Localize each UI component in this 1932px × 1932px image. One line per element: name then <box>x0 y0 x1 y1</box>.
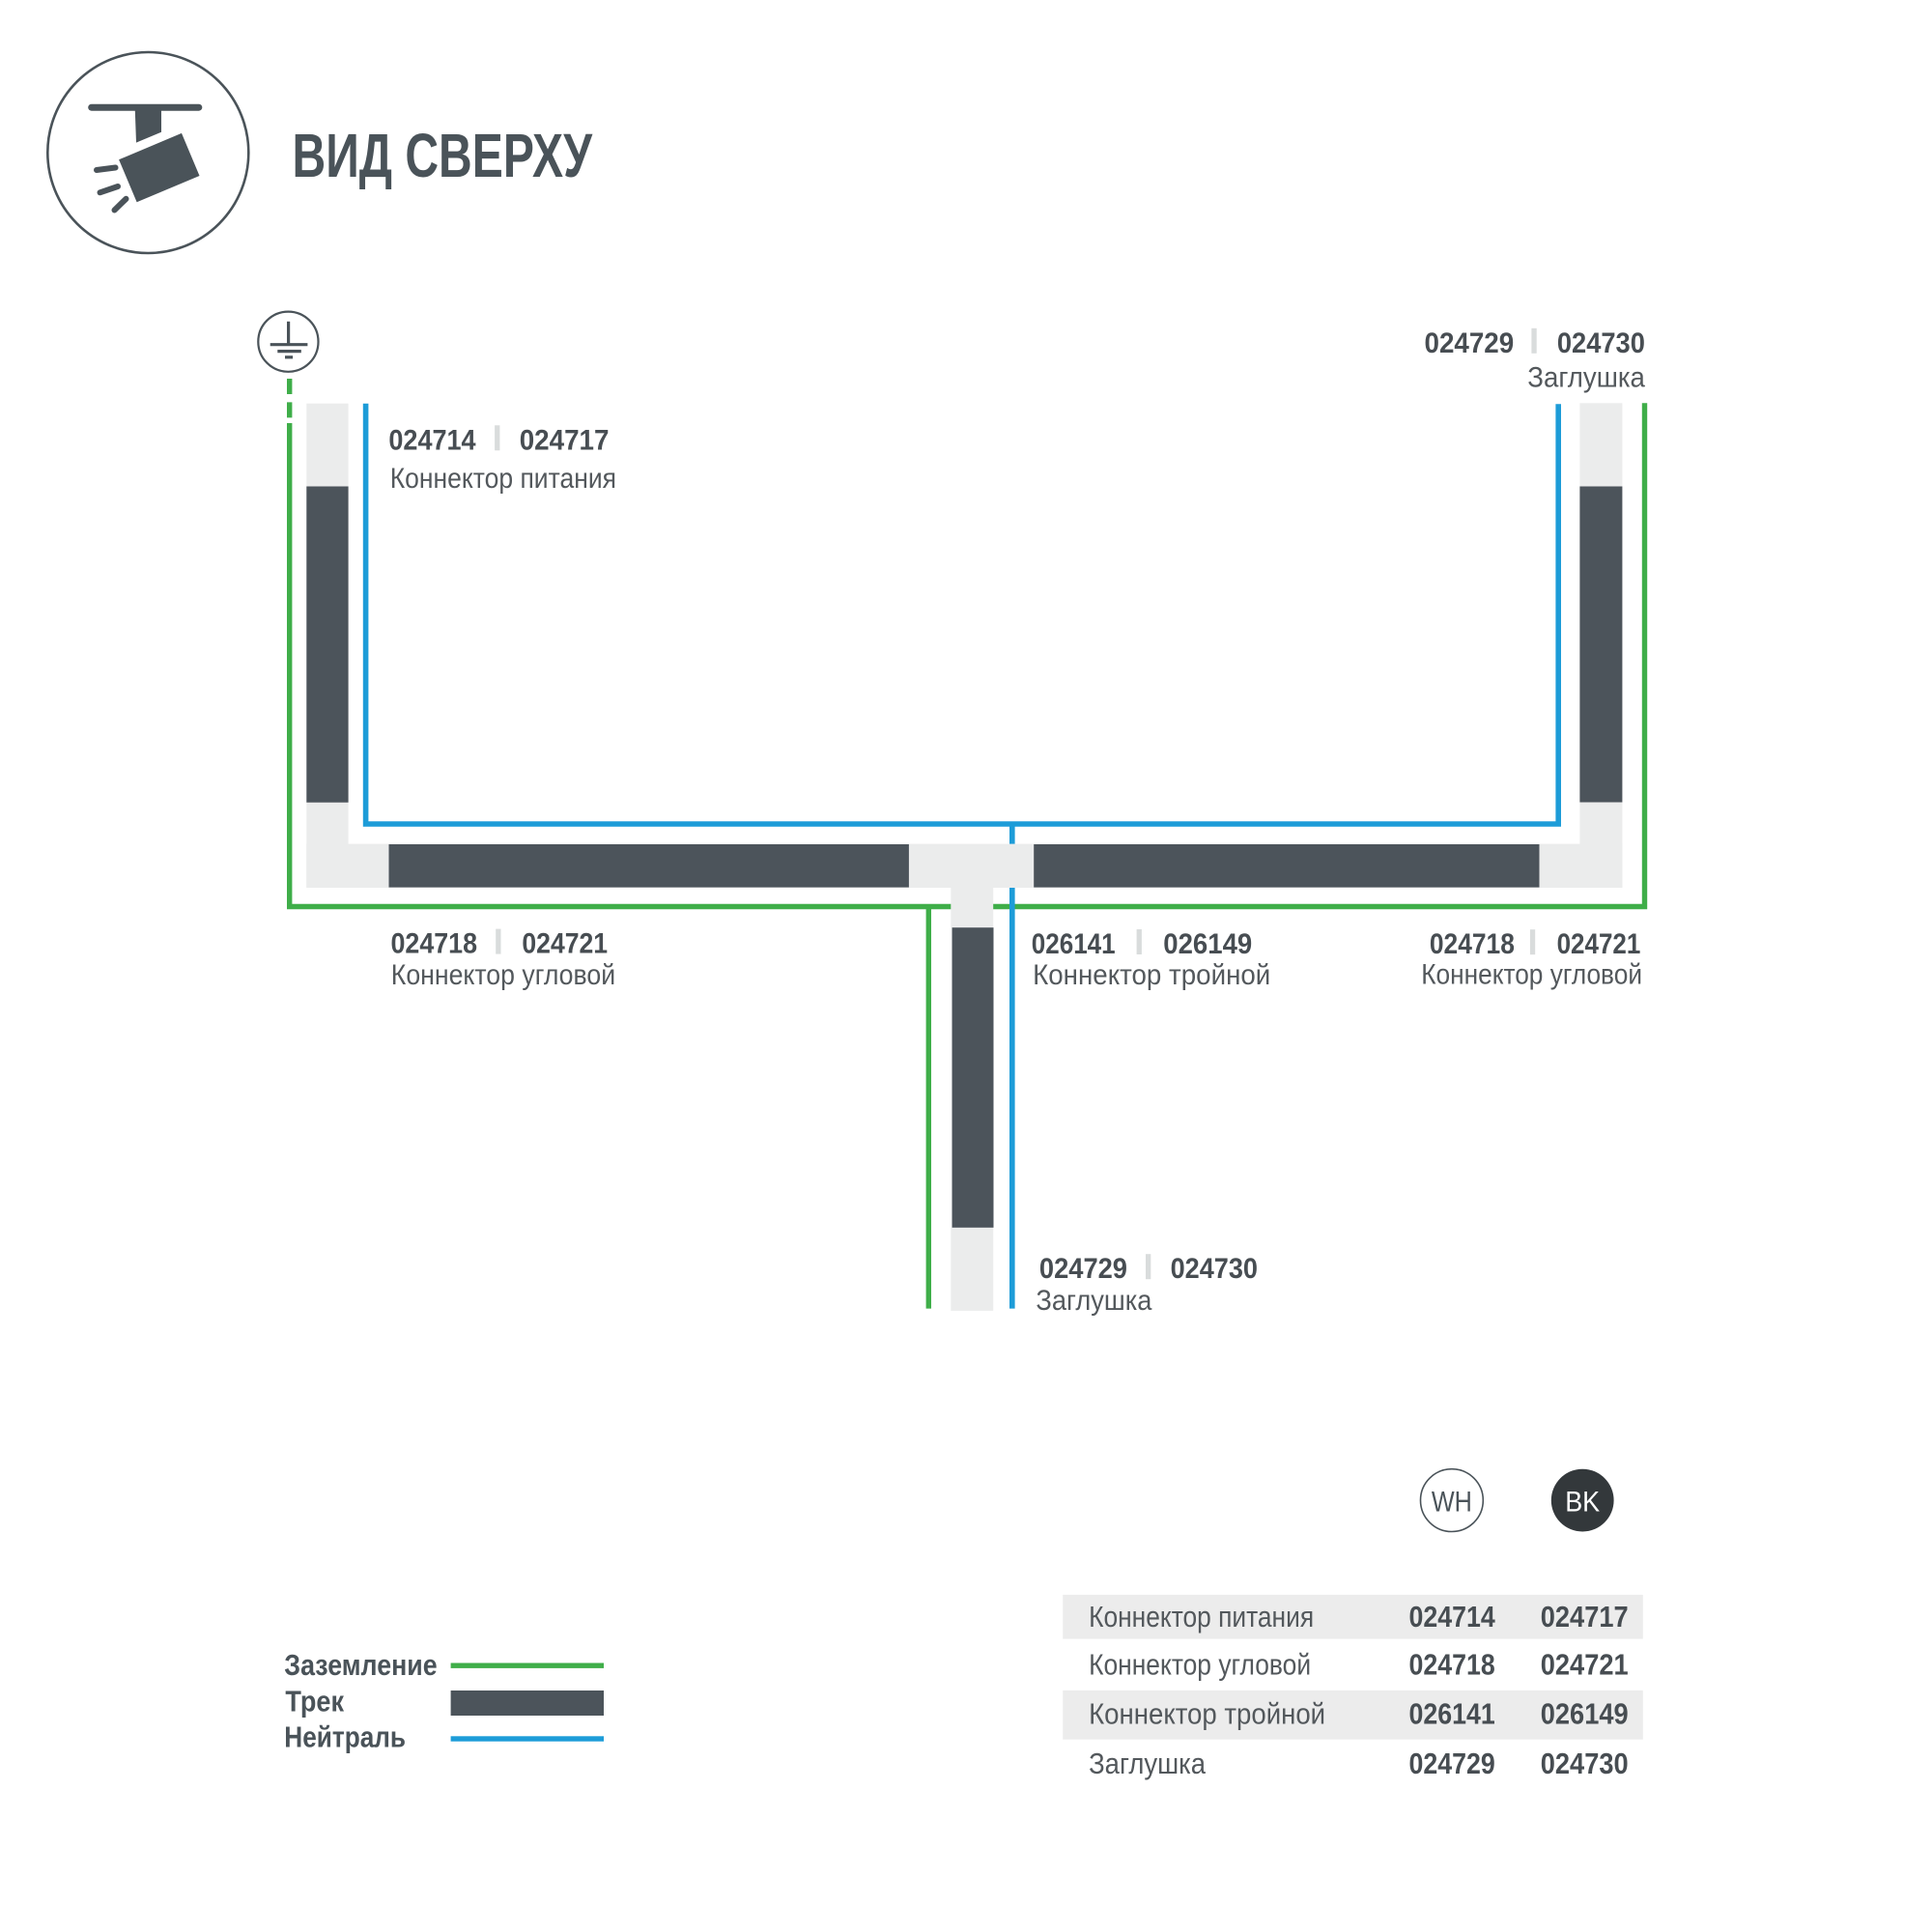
svg-text:026141: 026141 <box>1032 928 1116 960</box>
svg-text:Заземление: Заземление <box>284 1648 437 1682</box>
svg-text:024730: 024730 <box>1557 327 1645 359</box>
svg-text:Трек: Трек <box>285 1684 344 1718</box>
svg-text:Коннектор питания: Коннектор питания <box>1089 1600 1314 1634</box>
svg-text:Заглушка: Заглушка <box>1036 1285 1151 1317</box>
svg-text:024730: 024730 <box>1171 1253 1258 1285</box>
svg-text:ВИД СВЕРХУ: ВИД СВЕРХУ <box>293 121 593 190</box>
svg-text:024718: 024718 <box>1430 928 1515 960</box>
svg-text:024729: 024729 <box>1039 1253 1127 1285</box>
svg-text:024714: 024714 <box>1409 1600 1496 1634</box>
svg-text:Заглушка: Заглушка <box>1089 1747 1207 1780</box>
svg-text:026149: 026149 <box>1541 1696 1629 1730</box>
svg-text:024718: 024718 <box>1409 1648 1495 1682</box>
svg-text:024717: 024717 <box>1541 1600 1629 1634</box>
svg-text:Нейтраль: Нейтраль <box>284 1720 406 1754</box>
svg-text:024717: 024717 <box>520 424 610 456</box>
svg-text:Коннектор питания: Коннектор питания <box>390 463 616 495</box>
svg-text:Коннектор угловой: Коннектор угловой <box>1089 1648 1311 1682</box>
svg-text:Коннектор угловой: Коннектор угловой <box>391 959 615 991</box>
svg-text:Заглушка: Заглушка <box>1527 362 1645 394</box>
svg-text:024721: 024721 <box>522 928 608 960</box>
svg-text:024718: 024718 <box>391 928 478 960</box>
svg-text:024721: 024721 <box>1541 1648 1629 1682</box>
svg-text:Коннектор угловой: Коннектор угловой <box>1421 958 1642 990</box>
svg-text:024714: 024714 <box>388 424 475 456</box>
svg-text:BK: BK <box>1565 1487 1600 1519</box>
svg-text:024730: 024730 <box>1541 1747 1629 1780</box>
svg-text:024729: 024729 <box>1409 1747 1495 1780</box>
svg-text:026141: 026141 <box>1409 1696 1495 1730</box>
svg-text:WH: WH <box>1432 1487 1472 1519</box>
svg-text:Коннектор тройной: Коннектор тройной <box>1089 1696 1325 1730</box>
svg-text:026149: 026149 <box>1163 928 1252 960</box>
svg-text:024729: 024729 <box>1425 327 1515 359</box>
svg-text:Коннектор тройной: Коннектор тройной <box>1033 959 1270 991</box>
svg-text:024721: 024721 <box>1557 928 1641 960</box>
